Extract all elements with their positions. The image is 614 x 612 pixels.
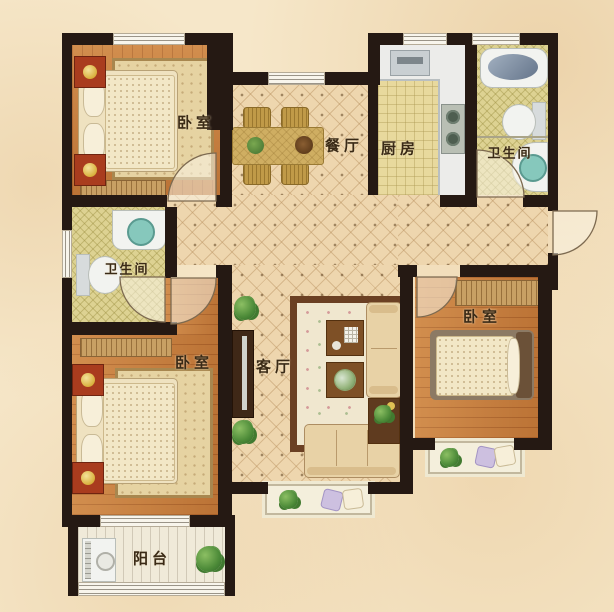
door-bedroom-top-left <box>168 153 216 201</box>
door-bedroom-right <box>417 277 457 317</box>
door-bathroom-left <box>120 277 165 322</box>
room-label-bathroom-top-right: 卫生间 <box>487 143 532 162</box>
door-bedroom-bottom-left <box>171 278 216 324</box>
room-label-living: 客厅 <box>256 356 294 377</box>
floor-plan: 卧室 卧室 卧室 卫生间 卫生间 餐厅 厨房 客厅 阳台 <box>0 0 614 612</box>
room-label-dining: 餐厅 <box>325 135 363 156</box>
door-entry <box>553 211 597 255</box>
room-label-bedroom-right: 卧室 <box>463 306 501 327</box>
room-label-bedroom-top-left: 卧室 <box>177 112 215 133</box>
room-label-balcony: 阳台 <box>133 548 171 569</box>
door-arcs <box>0 0 614 612</box>
room-label-bedroom-bottom-left: 卧室 <box>175 352 213 373</box>
room-label-bathroom-left: 卫生间 <box>104 259 149 278</box>
room-label-kitchen: 厨房 <box>381 138 419 159</box>
